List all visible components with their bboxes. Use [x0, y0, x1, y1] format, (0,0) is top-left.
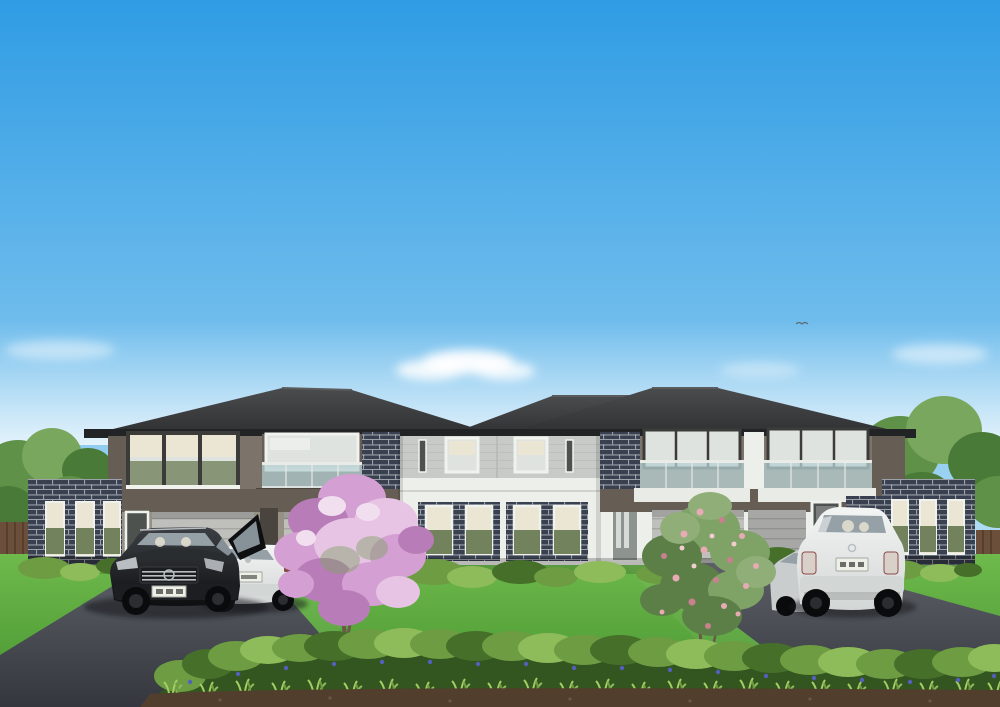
render-canvas [0, 0, 1000, 707]
wagon-badge [245, 557, 251, 563]
center-window-pair-2 [506, 502, 588, 561]
townhouse-render [0, 0, 1000, 707]
slot-window [566, 440, 573, 472]
suv-taillight [884, 552, 898, 574]
center-section [400, 436, 600, 492]
left-window-band [126, 431, 240, 489]
wing-window [948, 500, 964, 554]
wing-window [104, 502, 120, 556]
center-parapet [400, 478, 600, 492]
wing-window [76, 502, 94, 556]
slot-window [419, 440, 426, 472]
suv-windshield [137, 533, 215, 546]
left-brick-wing [28, 479, 122, 565]
wing-window [920, 500, 936, 554]
suv-taillight [802, 552, 816, 574]
wing-window [46, 502, 64, 556]
